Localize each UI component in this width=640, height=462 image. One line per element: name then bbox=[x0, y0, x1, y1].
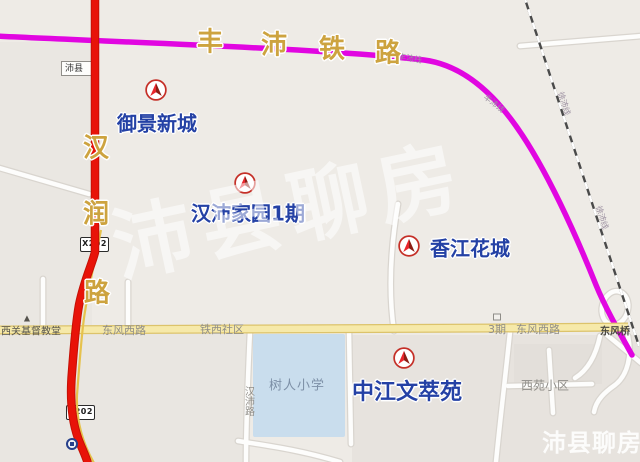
hanrun-road-casing bbox=[71, 0, 95, 462]
location-marker-icon bbox=[393, 347, 416, 370]
location-marker-icon bbox=[234, 172, 257, 195]
building-icon bbox=[493, 314, 501, 321]
street-hanpei-road: 汉沛路 bbox=[241, 386, 256, 416]
label-church: 西关基督教堂 bbox=[1, 323, 61, 338]
map-canvas: { "watermark": { "text": "沛县聊房", "corner… bbox=[0, 0, 640, 462]
marker-xiangjiang-huacheng[interactable] bbox=[398, 235, 421, 258]
marker-zhongjiang-wencuiyuan[interactable] bbox=[393, 347, 416, 370]
label-tiexi-shequ: 铁西社区 bbox=[200, 321, 244, 337]
hanrun-char-1: 汉 bbox=[83, 128, 109, 165]
location-marker-icon bbox=[145, 79, 168, 102]
label-xiyuan: 西苑小区 bbox=[521, 377, 569, 394]
marker-hanpei-jiayuan[interactable] bbox=[234, 172, 257, 195]
poi-blue-icon[interactable] bbox=[66, 438, 78, 450]
label-school: 树人小学 bbox=[269, 375, 325, 394]
railway-name-char-4: 路 bbox=[375, 33, 401, 70]
railway-name-char-3: 铁 bbox=[319, 29, 345, 66]
street-dongfeng-west-left: 东风西路 bbox=[102, 322, 146, 338]
estate-name-yujing-xincheng[interactable]: 御景新城 bbox=[117, 108, 197, 137]
estate-name-xiangjiang-huacheng[interactable]: 香江花城 bbox=[430, 233, 510, 262]
street-dongfeng-west-right: 东风西路 bbox=[516, 321, 560, 337]
estate-name-zhongjiang-wencuiyuan[interactable]: 中江文萃苑 bbox=[352, 374, 462, 406]
church-icon: ▲ bbox=[24, 314, 30, 323]
hanrun-char-2: 润 bbox=[83, 194, 109, 231]
xupei-railway-line bbox=[524, 0, 639, 346]
label-dongfeng-bridge: 东风桥 bbox=[600, 323, 630, 338]
location-marker-icon bbox=[398, 235, 421, 258]
watermark-corner: 沛县聊房 bbox=[542, 423, 640, 458]
hanrun-char-3: 路 bbox=[84, 273, 110, 310]
marker-yujing-xincheng[interactable] bbox=[145, 79, 168, 102]
railway-name-char-1: 丰 bbox=[197, 22, 223, 59]
estate-name-hanpei-jiayuan[interactable]: 汉沛家园1期 bbox=[191, 198, 305, 227]
railway-name-char-2: 沛 bbox=[261, 25, 287, 62]
label-phase3: 3期 bbox=[488, 321, 506, 337]
